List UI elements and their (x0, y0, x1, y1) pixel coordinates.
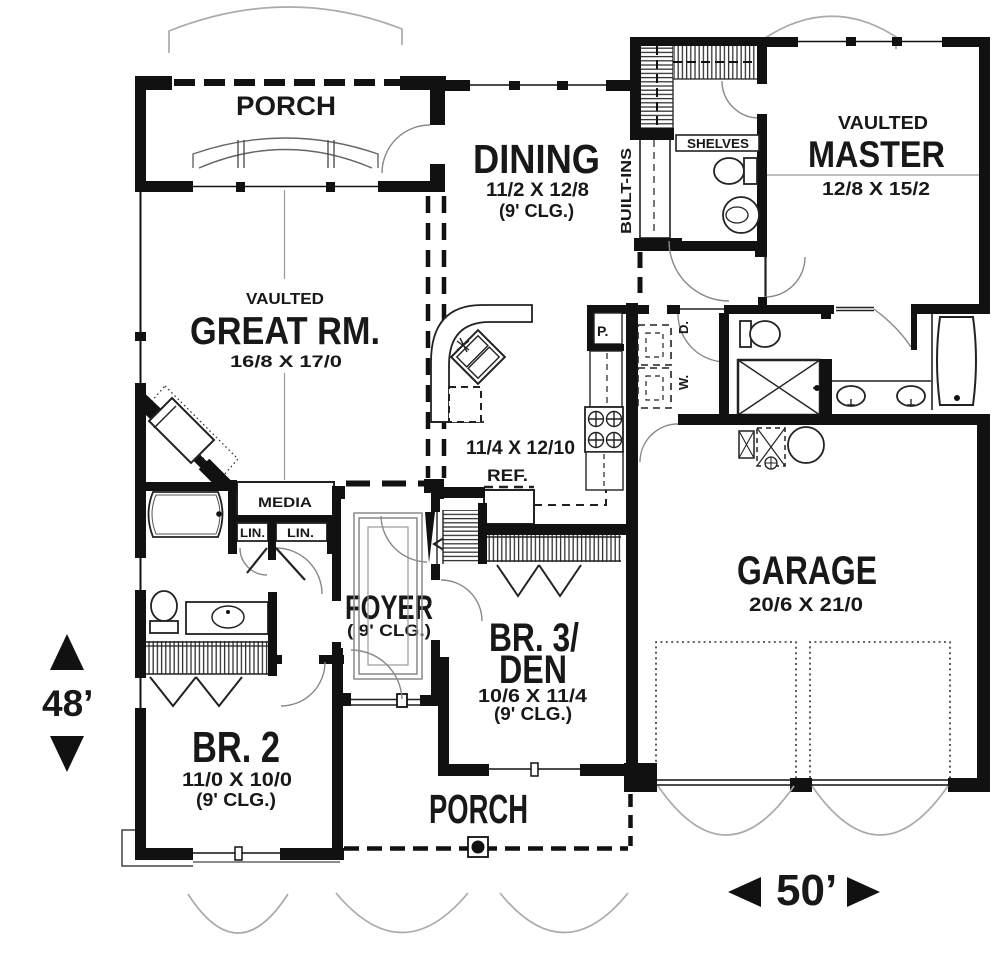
svg-text:LIN.: LIN. (240, 526, 265, 540)
svg-text:16/8 X 17/0: 16/8 X 17/0 (230, 352, 342, 371)
svg-text:MEDIA: MEDIA (258, 494, 312, 510)
svg-text:11/4 X 12/10: 11/4 X 12/10 (466, 438, 575, 459)
svg-text:SHELVES: SHELVES (687, 137, 749, 151)
svg-text:PORCH: PORCH (236, 91, 336, 121)
svg-text:11/2 X 12/8: 11/2 X 12/8 (486, 180, 589, 201)
svg-text:W.: W. (676, 375, 691, 390)
svg-text:MASTER: MASTER (808, 134, 945, 175)
svg-text:(9' CLG.): (9' CLG.) (494, 704, 572, 724)
svg-text:(9' CLG.): (9' CLG.) (196, 790, 276, 810)
svg-text:P.: P. (597, 323, 608, 339)
svg-text:20/6 X 21/0: 20/6 X 21/0 (749, 595, 863, 616)
svg-text:GARAGE: GARAGE (737, 549, 877, 593)
svg-text:50’: 50’ (776, 866, 837, 915)
svg-text:10/6 X 11/4: 10/6 X 11/4 (478, 686, 587, 706)
svg-text:REF.: REF. (487, 466, 528, 485)
svg-text:VAULTED: VAULTED (838, 113, 928, 133)
svg-text:12/8 X 15/2: 12/8 X 15/2 (822, 179, 930, 199)
svg-text:VAULTED: VAULTED (246, 291, 324, 308)
svg-text:BR. 2: BR. 2 (192, 723, 280, 772)
svg-text:48’: 48’ (42, 683, 93, 724)
svg-text:LIN.: LIN. (287, 526, 314, 540)
svg-text:BUILT-INS: BUILT-INS (618, 148, 635, 234)
svg-text:11/0 X 10/0: 11/0 X 10/0 (182, 770, 292, 791)
svg-text:D.: D. (676, 321, 691, 334)
svg-text:(9' CLG.): (9' CLG.) (499, 201, 574, 221)
svg-text:PORCH: PORCH (429, 786, 528, 832)
svg-text:DINING: DINING (473, 136, 600, 182)
svg-text:GREAT RM.: GREAT RM. (190, 310, 380, 353)
